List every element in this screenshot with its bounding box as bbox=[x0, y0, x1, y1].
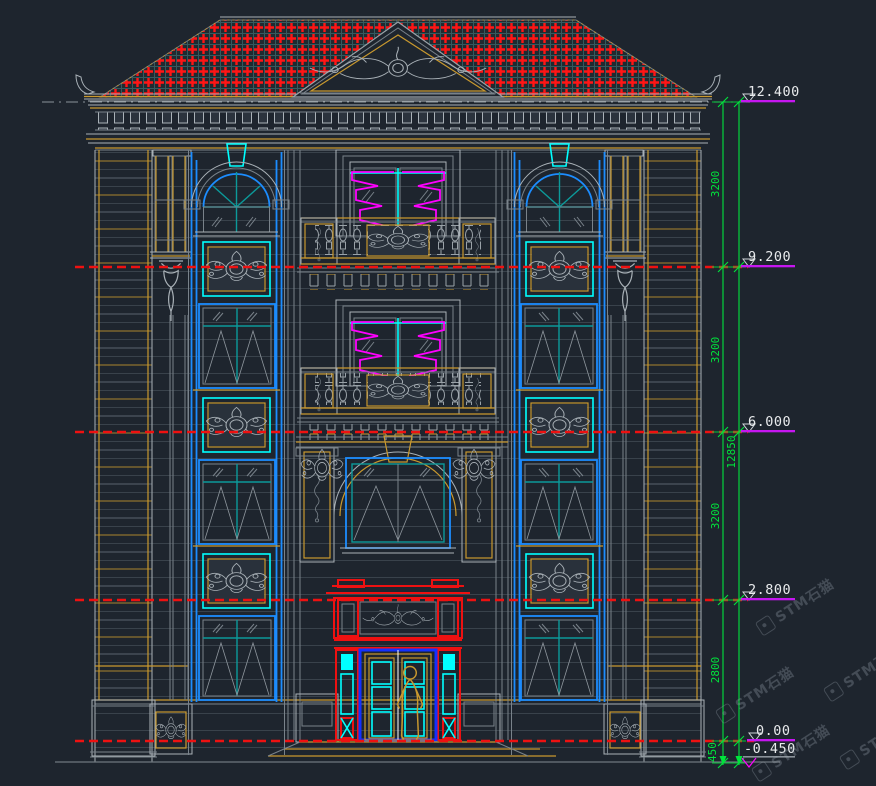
third-floor-balcony bbox=[297, 218, 499, 290]
level-label: 0.00 bbox=[756, 723, 791, 739]
level-label: 6.000 bbox=[748, 414, 791, 430]
dimension-lines: 3200 3200 3200 2800 450 12850 bbox=[706, 97, 746, 768]
cad-canvas: 3200 3200 3200 2800 450 12850 12.400 9.2… bbox=[0, 0, 876, 786]
second-floor-balcony bbox=[297, 368, 499, 440]
dim-floor2: 3200 bbox=[709, 503, 722, 530]
level-label: 2.800 bbox=[748, 582, 791, 598]
dim-total: 12850 bbox=[725, 435, 738, 468]
main-cornice bbox=[86, 101, 710, 148]
level-marker-2800: 2.800 bbox=[741, 582, 795, 600]
dim-floor4: 3200 bbox=[709, 171, 722, 198]
level-markers: 12.400 9.200 6.000 2.800 0.00 -0.450 bbox=[741, 84, 800, 767]
dim-floor3: 3200 bbox=[709, 337, 722, 364]
level-marker-0: 0.00 bbox=[747, 723, 795, 741]
level-label: 12.400 bbox=[748, 84, 800, 100]
level-marker-6000: 6.000 bbox=[741, 414, 795, 432]
level-label: 9.200 bbox=[748, 249, 791, 265]
elevation-drawing: 3200 3200 3200 2800 450 12850 12.400 9.2… bbox=[0, 0, 876, 786]
dim-plinth: 450 bbox=[706, 742, 719, 762]
level-marker-12400: 12.400 bbox=[741, 84, 800, 102]
level-marker-9200: 9.200 bbox=[741, 249, 795, 267]
dim-floor1: 2800 bbox=[709, 657, 722, 684]
